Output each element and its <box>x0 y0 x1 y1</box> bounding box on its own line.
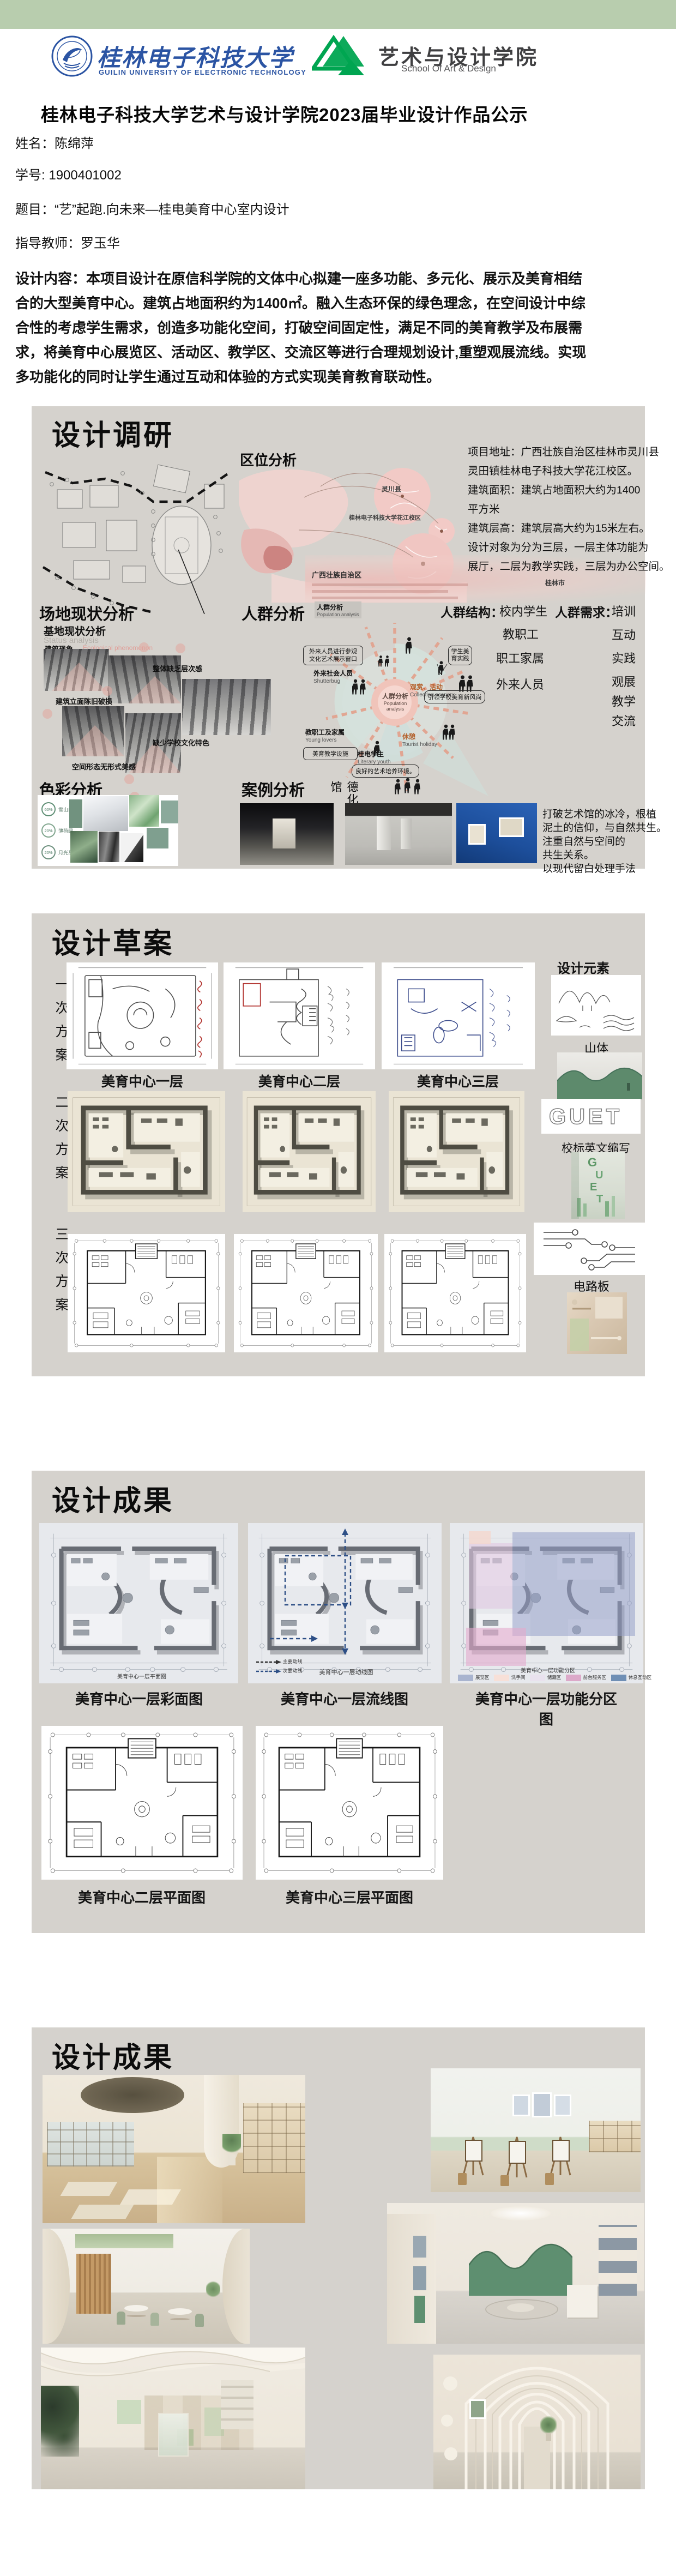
project-info-line: 平方米 <box>468 500 500 516</box>
wall-picture <box>532 2092 552 2117</box>
connector-dot <box>43 709 52 719</box>
results-caption-3f: 美育中心三层平面图 <box>281 1887 418 1907</box>
project-info-line: 建筑层高：建筑层高大约为15米左右。 <box>468 519 650 535</box>
spider-node: 外来社会人员 Shutterbug <box>313 669 353 684</box>
corridor-picture <box>469 2399 486 2419</box>
design-content-line: 合性的考虑学生需求，创造多功能化空间，打破空间固定性，满足不同的美育教学及布展需 <box>15 317 582 337</box>
cad-plan-card <box>68 1234 225 1352</box>
spider-bubble: 外来人员进行参观 文化艺术展示窗口 <box>303 646 363 665</box>
results-caption-3: 美育中心一层功能分区图 <box>470 1688 623 1729</box>
case-desc-line: 注重自然与空间的 <box>542 833 625 848</box>
svg-text:G: G <box>588 1155 597 1169</box>
map-smalltext-bar <box>312 597 458 599</box>
page-title: 桂林电子科技大学艺术与设计学院2023届毕业设计作品公示 <box>41 100 528 127</box>
top-green-bar <box>0 0 676 29</box>
population-caption: 人群分析 Population analysis <box>315 601 361 618</box>
section-results-plans-title: 设计成果 <box>52 1478 174 1519</box>
map-label-guilin: 桂林市 <box>545 578 565 587</box>
color-palette-card: 60% 雪山白 20% 薄荷绿 20% 月光灰 <box>38 795 178 866</box>
wall-circle-niche <box>444 2447 457 2460</box>
map-smalltext-bar <box>312 590 448 593</box>
ceiling-light <box>491 2206 551 2220</box>
needs-item: 培训 <box>612 602 636 619</box>
cafe-table <box>124 2305 148 2312</box>
svg-text:T: T <box>596 1193 603 1205</box>
site-photo-label: 缺少学校文化特色 <box>153 737 209 748</box>
guet-logo-en: GUILIN UNIVERSITY OF ELECTRONIC TECHNOLO… <box>99 68 306 76</box>
wall-circle-niche <box>443 2376 457 2391</box>
svg-text:U: U <box>595 1169 603 1181</box>
svg-text:GUET: GUET <box>549 1105 623 1129</box>
render-wave-gallery <box>387 2203 644 2344</box>
render-art-classroom <box>431 2068 641 2192</box>
zone-overlay-front <box>466 1628 526 1666</box>
plan-3d <box>68 1091 225 1212</box>
results-caption-1: 美育中心一层彩面图 <box>71 1688 207 1708</box>
connector-dot <box>124 774 134 784</box>
curved-column <box>43 2229 70 2344</box>
yoga-mat <box>71 2205 134 2219</box>
guet-installation-render: G U E T <box>571 1152 625 1219</box>
mountain-render <box>557 1052 642 1099</box>
green-wave-wall <box>469 2236 572 2296</box>
project-info-line: 建筑面积：建筑占地面积大约为1400 <box>468 481 640 497</box>
plan-3d <box>243 1091 376 1212</box>
case-desc-line: 打破艺术馆的冰冷，根植 <box>542 806 656 821</box>
wall-picture <box>554 2094 571 2116</box>
guet-seal-logo <box>51 35 93 77</box>
zone-legend: 展览区 洗手间 储藏区 前台服务区 休息互动区 <box>458 1674 643 1681</box>
wall-circle-niche <box>441 2415 453 2427</box>
zone-chip <box>458 1675 473 1681</box>
render-wave-lobby <box>41 2348 305 2489</box>
palette-circle: 20% <box>41 845 56 859</box>
needs-item: 交流 <box>612 712 636 729</box>
case-photo-dark <box>240 803 334 865</box>
circuit-sketch-card <box>534 1223 645 1275</box>
spider-node-en: Shutterbug <box>313 678 353 684</box>
palette-circle: 20% <box>41 823 56 838</box>
map-label-campus: 桂林电子科技大学花江校区 <box>349 513 421 522</box>
site-analysis-heading: 场地现状分析 <box>39 601 134 624</box>
zone-label: 前台服务区 <box>583 1675 607 1680</box>
case-photo-hall <box>345 803 452 865</box>
sketch-plan-card <box>67 962 218 1069</box>
spider-node-zh: 观赏、活动 <box>410 683 443 691</box>
structure-item: 教职工 <box>503 625 539 642</box>
corridor-plant <box>540 2416 557 2434</box>
palette-img-dunes <box>99 832 119 862</box>
name-label: 姓名： <box>15 136 55 151</box>
section-draft-title: 设计草案 <box>52 920 174 961</box>
corridor-plant-pot <box>546 2433 551 2441</box>
wavy-ceiling <box>41 2348 305 2391</box>
student-id-row: 学号: 1900401002 <box>15 164 122 183</box>
spider-bubble: 良好的艺术培养环境。 <box>352 765 419 778</box>
structure-label: 人群结构： <box>440 602 503 621</box>
project-info-line: 设计对象为分为三层，一层主体功能为 <box>468 538 649 554</box>
spider-center-en1: Population <box>376 701 414 706</box>
cafe-table <box>168 2308 192 2315</box>
render-cafe <box>43 2229 250 2344</box>
spider-node-en: Tourist holiday <box>402 742 437 748</box>
display-frame <box>413 2266 426 2290</box>
right-frames <box>599 2225 637 2296</box>
ceiling-recess <box>75 2234 173 2248</box>
case-desc-line: 共生关系。 <box>542 847 594 862</box>
zone-chip <box>611 1675 626 1681</box>
pedestal <box>567 2285 597 2318</box>
population-heading: 人群分析 <box>242 601 305 624</box>
green-display <box>414 2296 425 2323</box>
color-plan-1-title: 美育中心一层平面图 <box>98 1672 185 1680</box>
spider-node-en: Young lovers <box>305 737 345 743</box>
needs-item: 互动 <box>612 625 636 643</box>
connector-dot <box>102 686 112 696</box>
color-plan-3-title: 美育中心一层功能分区 <box>502 1666 594 1674</box>
campus-site-map <box>41 452 237 615</box>
needs-item: 观展 <box>612 672 636 690</box>
svg-text:E: E <box>590 1181 597 1193</box>
arches <box>433 2355 641 2489</box>
project-info-line: 项目地址：广西壮族自治区桂林市灵川县 <box>468 443 659 459</box>
sid-label: 学号: <box>15 168 49 183</box>
zone-chip <box>530 1675 545 1681</box>
green-panel <box>117 2400 141 2424</box>
spider-node: 休憩 Tourist holiday <box>402 732 437 748</box>
mountain-sketch-card <box>551 975 641 1036</box>
gallery-rug-inner <box>507 2303 534 2312</box>
advisor-label: 指导教师： <box>15 236 81 251</box>
zone-label: 洗手间 <box>511 1675 526 1680</box>
cafe-chair <box>117 2312 125 2325</box>
case-photo-column <box>401 818 412 849</box>
zone-chip <box>566 1675 581 1681</box>
plan-3d <box>389 1091 524 1212</box>
case-photo-column <box>377 816 391 850</box>
section-results-renders-title: 设计成果 <box>52 2035 174 2075</box>
spider-bubble: 学生美育实践 <box>448 646 472 665</box>
advisor-row: 指导教师：罗玉华 <box>15 232 120 251</box>
draft-caption-3: 美育中心三层 <box>403 1071 512 1091</box>
art-school-logo-en: School Of Art & Design <box>401 63 496 74</box>
connector-dot <box>139 642 149 652</box>
swatch-sage <box>147 828 168 848</box>
case-desc-line: 以现代留白处理手法 <box>542 860 636 875</box>
zone-chip <box>494 1675 509 1681</box>
cafe-chair <box>150 2313 159 2326</box>
floor-light <box>157 2157 222 2223</box>
poster-page: 桂林电子科技大学 GUILIN UNIVERSITY OF ELECTRONIC… <box>0 0 676 2576</box>
zone-overlay-wc <box>469 1531 491 1544</box>
art-school-logo-icon <box>312 35 373 76</box>
spider-node: 桂电学生 Literary youth <box>358 749 391 765</box>
plant-pot <box>228 2154 236 2165</box>
population-caption-zh: 人群分析 <box>317 603 359 612</box>
zone-overlay-exhibit <box>512 1532 635 1636</box>
flow-legend: 主要动线 次要动线 <box>256 1658 303 1674</box>
map-smalltext-bar <box>312 583 468 586</box>
needs-item: 实践 <box>612 649 636 666</box>
structure-item: 校内学生 <box>499 602 547 619</box>
structure-item: 外来人员 <box>496 675 544 693</box>
design-elements-heading: 设计元素 <box>557 958 609 977</box>
zone-overlay-storage <box>469 1543 512 1609</box>
plant <box>222 2134 241 2156</box>
topic-row: 题目：“艺”起跑.向未来—桂电美育中心室内设计 <box>15 198 289 218</box>
spider-node-zh: 教职工及家属 <box>305 729 345 736</box>
advisor-value: 罗玉华 <box>81 236 120 251</box>
spider-bubble: 美育教学设施 <box>303 747 358 760</box>
render-arch-corridor <box>433 2355 641 2489</box>
swatch-dark-sage <box>69 799 82 828</box>
ceiling-disc <box>81 2077 184 2113</box>
spider-bubble-line: 文化艺术展示窗口 <box>306 655 360 663</box>
project-info-line: 展厅，二层为教学实践，三层为办公空间。 <box>468 557 670 573</box>
map-label-lingchuan: 灵川县 <box>382 484 401 493</box>
easels <box>442 2121 605 2186</box>
design-content-line: 多功能化的同时让学生通过互动和体验的方式实现美育教育联动性。 <box>15 366 440 386</box>
spider-node-zh: 桂电学生 <box>358 750 384 758</box>
render-dance-studio <box>43 2075 305 2223</box>
draft-caption-1: 美育中心一层 <box>88 1071 197 1091</box>
curved-column <box>222 2229 250 2344</box>
structure-item: 职工家属 <box>496 649 544 666</box>
guet-sketch-card: GUET <box>541 1099 641 1134</box>
dark-plant <box>41 2386 79 2457</box>
project-info-line: 灵田镇桂林电子科技大学花江校区。 <box>468 462 638 478</box>
spider-center-label: 人群分析 Population analysis <box>376 691 414 712</box>
case-photo-doorway <box>273 818 295 848</box>
flow-legend-row: 次要动线 <box>256 1667 303 1674</box>
spider-node-zh: 外来社会人员 <box>313 670 353 677</box>
case-photo-picture <box>468 824 486 845</box>
case-photo-picture <box>499 817 524 837</box>
results-caption-2: 美育中心一层流线图 <box>276 1688 413 1708</box>
needs-item: 教学 <box>612 692 636 709</box>
cad-plan-card <box>384 1234 526 1352</box>
storage-shelf <box>243 2103 305 2173</box>
site-photo-label: 空间形态无形式美感 <box>72 761 136 772</box>
spider-bubble: 引领学校美育新风尚 <box>424 690 485 703</box>
color-plan-2-title: 美育中心一层动线图 <box>300 1668 393 1676</box>
spider-center-zh: 人群分析 <box>376 691 414 701</box>
sid-value: 1900401002 <box>49 168 121 183</box>
zone-label: 休息互动区 <box>629 1675 652 1680</box>
site-photo <box>182 679 271 735</box>
spider-node-zh: 休憩 <box>402 733 415 741</box>
flow-legend-label: 主要动线 <box>283 1659 303 1664</box>
topic-value: “艺”起跑.向未来—桂电美育中心室内设计 <box>55 202 289 217</box>
zone-label: 储藏区 <box>547 1675 562 1680</box>
cad-plan-card <box>234 1234 378 1352</box>
map-label-guangxi: 广西壮族自治区 <box>312 569 361 580</box>
sketch-plan-card <box>224 962 375 1069</box>
sketch-plan-card <box>382 962 535 1069</box>
cad-plan-card-2f <box>41 1726 243 1880</box>
draft-caption-2: 美育中心二层 <box>245 1071 354 1091</box>
cafe-plant <box>206 2281 220 2297</box>
window-wall <box>47 2122 134 2166</box>
color-plan-1 <box>39 1523 238 1683</box>
name-value: 陈绵萍 <box>55 136 94 151</box>
population-caption-en: Population analysis <box>317 612 359 617</box>
case-photo-blue <box>456 803 537 863</box>
spider-bubble-line: 外来人员进行参观 <box>306 648 360 655</box>
palette-circle: 60% <box>41 802 56 816</box>
needs-label: 人群需求： <box>555 602 618 621</box>
connector-dot <box>176 643 185 653</box>
display-window <box>221 2380 253 2429</box>
spider-node: 教职工及家属 Young lovers <box>305 727 345 743</box>
design-content-line: 设计内容：本项目设计在原信科学院的文体中心拟建一座多功能、多元化、展示及美育相结 <box>15 268 582 288</box>
center-display <box>158 2413 189 2457</box>
circuit-render <box>567 1292 627 1354</box>
wood-screen <box>76 2254 111 2314</box>
site-photo-label: 建筑立面陈旧破损 <box>56 696 112 706</box>
wall-picture <box>512 2094 530 2116</box>
palette-img-mountain <box>83 796 128 831</box>
flow-legend-row: 主要动线 <box>256 1658 303 1665</box>
cafe-chair <box>195 2314 204 2327</box>
section-research-title: 设计调研 <box>52 412 174 453</box>
yoga-mat <box>60 2182 117 2196</box>
case-analysis-heading: 案例分析 <box>242 778 305 801</box>
palette-img-landscape <box>70 831 98 863</box>
cad-plan-card-3f <box>256 1726 443 1880</box>
site-photo-label: 整体缺乏层次感 <box>153 663 202 673</box>
spider-center-en2: analysis <box>376 706 414 712</box>
swatch-gray-sage <box>161 801 178 823</box>
topic-label: 题目： <box>15 202 55 217</box>
palette-img-greensea <box>129 795 159 827</box>
left-display-wall <box>387 2214 436 2344</box>
zone-label: 展览区 <box>475 1675 490 1680</box>
palette-img-bw <box>120 833 143 862</box>
results-caption-2f: 美育中心二层平面图 <box>74 1887 210 1907</box>
case-desc-line: 泥土的信仰，与自然共生。 <box>542 820 667 834</box>
student-name-row: 姓名：陈绵萍 <box>15 133 94 152</box>
design-content-line: 求，将美育中心展览区、活动区、教学区、交流区等进行合理规划设计,重塑观展流线。实… <box>15 341 586 362</box>
display-frame <box>413 2236 426 2258</box>
design-content-line: 合的大型美育中心。建筑占地面积约为1400㎡。融入生态环保的绿色理念，在空间设计… <box>15 292 586 312</box>
